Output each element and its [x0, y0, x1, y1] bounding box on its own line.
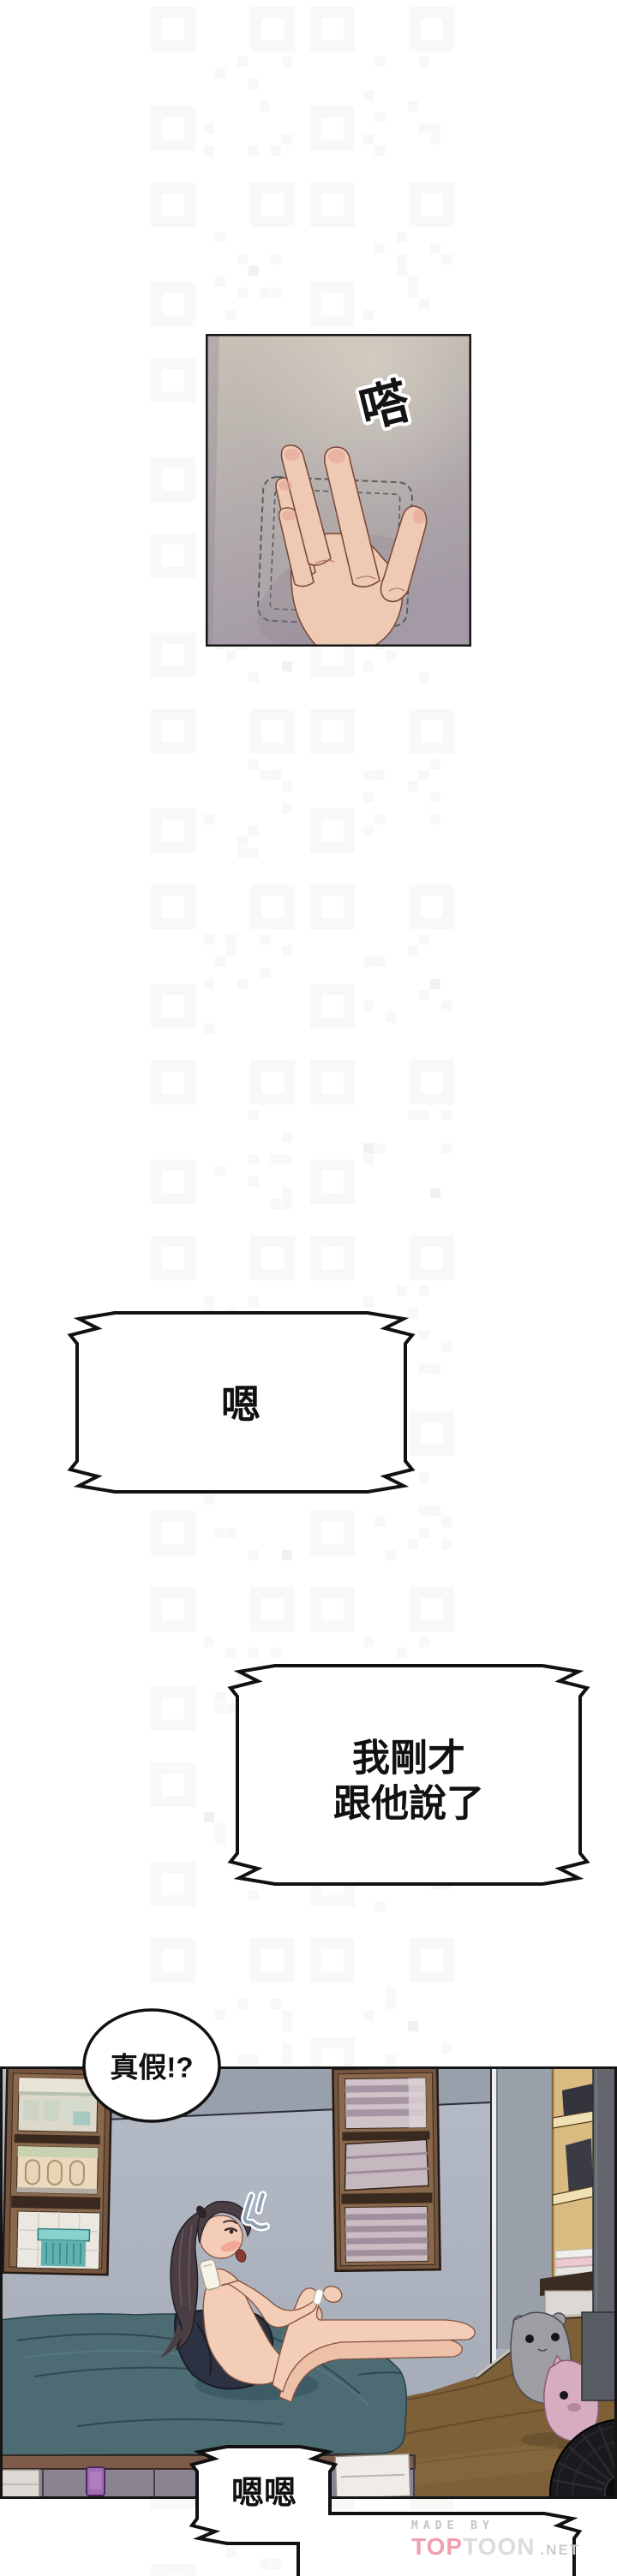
shout-bubble-really: 真假!?: [77, 2002, 231, 2129]
made-by-label: MADE BY: [411, 2519, 580, 2532]
bubble-really-text: 真假!?: [110, 2052, 193, 2084]
shelf-object-middle: [566, 2138, 593, 2195]
window-pane-bottom: [345, 2206, 428, 2262]
window-pane-bottom: [17, 2211, 100, 2269]
window-pane-middle: [16, 2146, 98, 2194]
window-sash-rail: [15, 2134, 100, 2144]
bubble-told-him-line1: 我剛才: [352, 1738, 465, 1780]
bubble-hm-text: 嗯: [221, 1382, 261, 1427]
bubble-told-him-line2: 跟他說了: [333, 1783, 484, 1825]
ac-unit-body: [41, 2240, 87, 2267]
iris: [230, 2230, 234, 2234]
site-watermark: MADE BY TOPTOON.NET: [411, 2519, 580, 2559]
bubble-hmhm-text: 嗯嗯: [231, 2476, 297, 2512]
stacked-books: [555, 2248, 594, 2275]
window-pane-top: [345, 2078, 427, 2128]
panel-light-switch: 嗒: [206, 334, 471, 647]
window-right: [332, 2067, 440, 2271]
fan-housing: [582, 2312, 617, 2400]
window-pane-middle-open: [344, 2139, 429, 2190]
brand-top: TOP: [411, 2533, 463, 2560]
ac-unit-top: [38, 2229, 89, 2241]
brand-logo: TOPTOON.NET: [411, 2535, 580, 2559]
phone-speech-bubble-hm: 嗯: [43, 1285, 428, 1507]
comic-page[interactable]: 嗒 嗯 我剛才 跟他說了: [0, 0, 617, 2576]
phone-speech-bubble-told-him: 我剛才 跟他說了: [210, 1649, 604, 1901]
smartphone-on-frame: [87, 2467, 105, 2495]
brand-toon: TOON: [463, 2533, 535, 2560]
window-sash-rail-2: [11, 2196, 100, 2209]
brand-tld: .NET: [540, 2542, 580, 2558]
